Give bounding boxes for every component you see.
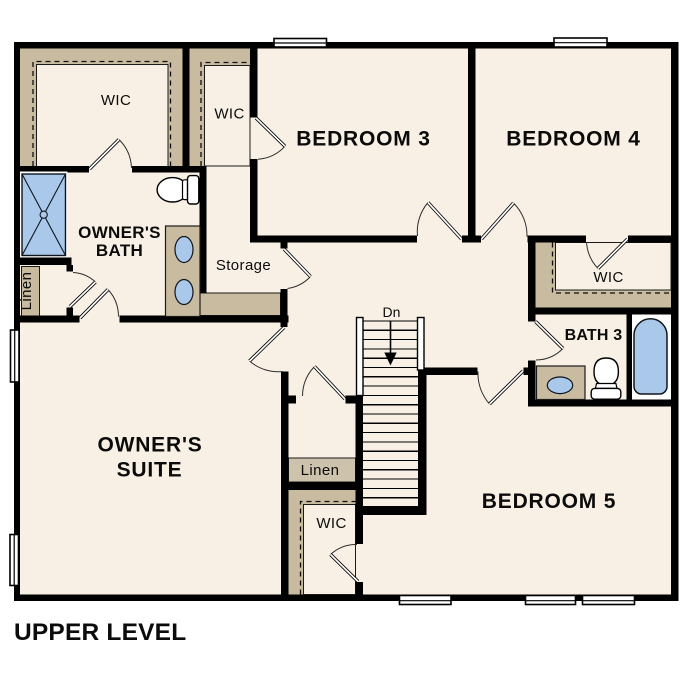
svg-text:WIC: WIC [593, 269, 623, 286]
svg-text:OWNER'S: OWNER'S [97, 434, 202, 457]
svg-text:OWNER'S: OWNER'S [78, 223, 161, 242]
svg-text:Linen: Linen [301, 462, 340, 479]
svg-text:Linen: Linen [18, 272, 35, 311]
svg-text:Storage: Storage [216, 257, 271, 274]
svg-text:WIC: WIC [316, 515, 346, 532]
svg-text:WIC: WIC [101, 92, 131, 109]
svg-text:Dn: Dn [383, 304, 401, 320]
svg-text:BATH: BATH [96, 241, 143, 260]
svg-text:BATH 3: BATH 3 [565, 327, 623, 344]
svg-text:SUITE: SUITE [117, 459, 183, 482]
svg-text:BEDROOM 3: BEDROOM 3 [296, 128, 430, 151]
svg-text:WIC: WIC [214, 106, 244, 123]
svg-text:UPPER LEVEL: UPPER LEVEL [14, 619, 186, 646]
svg-text:BEDROOM 4: BEDROOM 4 [506, 128, 640, 151]
svg-text:BEDROOM 5: BEDROOM 5 [482, 490, 616, 513]
